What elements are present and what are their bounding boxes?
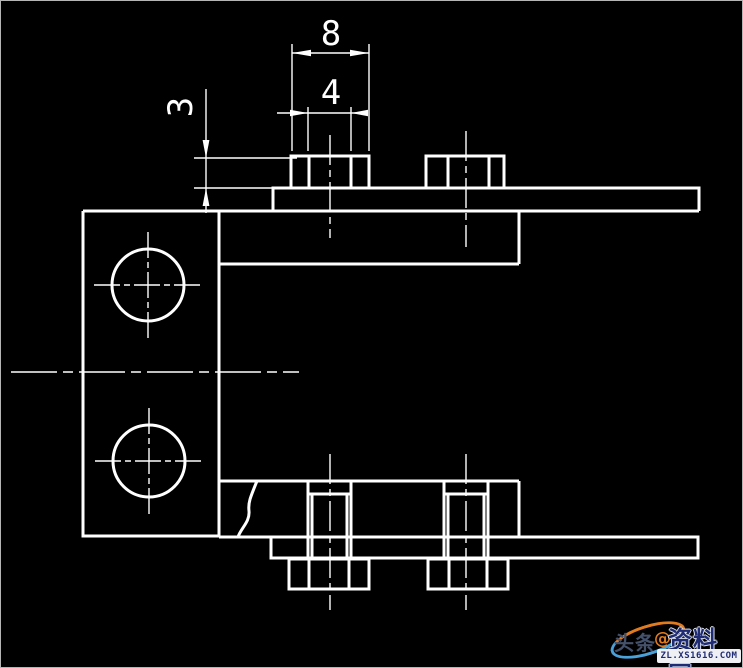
dim3-arrow-top: [203, 140, 210, 158]
watermark-url-bar: ZL.XS1616.COM: [657, 649, 741, 663]
bottom-bolt-2-head: [428, 559, 508, 589]
dim3-arrow-bottom: [203, 188, 210, 206]
top-plate-outline: [273, 188, 699, 211]
upper-arm-outline: [219, 211, 519, 264]
bottom-bolt-1-head: [289, 559, 369, 589]
watermark-prefix: 头条: [614, 627, 656, 656]
top-nut-2: [426, 156, 504, 187]
break-line: [238, 481, 257, 537]
dim4-label: 4: [321, 73, 341, 113]
watermark: 头条 @ 资料网 ZL.XS1616.COM: [605, 618, 741, 666]
dim8-arrow-right: [350, 50, 369, 57]
dim4-arrow-left: [290, 110, 308, 117]
dimension-arrowheads: [203, 50, 369, 206]
dim8-arrow-left: [292, 50, 311, 57]
dim3-extension-lines: [194, 158, 297, 188]
dim4-arrow-right: [351, 110, 368, 117]
cad-drawing: 8 4 3: [1, 1, 743, 668]
dim3-label: 3: [161, 97, 201, 117]
cad-screenshot: 8 4 3 头条 @ 资料网 ZL.XS1616.COM: [0, 0, 743, 668]
left-block-outline: [83, 211, 219, 536]
lower-arm-outline: [219, 481, 519, 537]
dim8-label: 8: [321, 14, 341, 54]
watermark-url: ZL.XS1616.COM: [661, 651, 738, 661]
